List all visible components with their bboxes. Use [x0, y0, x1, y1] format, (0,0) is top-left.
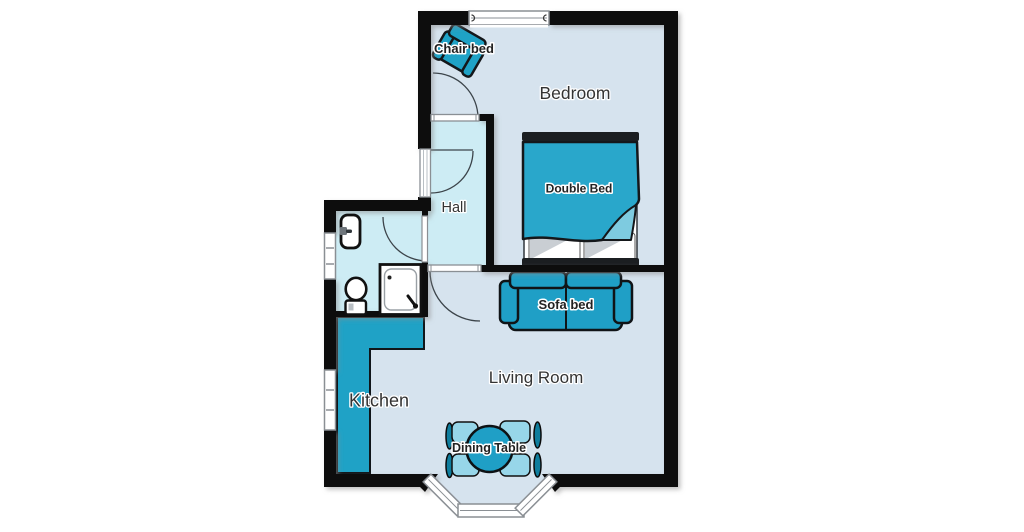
svg-text:Sofa bed: Sofa bed [539, 297, 594, 312]
svg-text:Dining Table: Dining Table [452, 441, 526, 455]
svg-text:Bedroom: Bedroom [539, 83, 610, 103]
svg-text:Double Bed: Double Bed [546, 182, 613, 196]
svg-text:Hall: Hall [442, 200, 467, 216]
svg-text:Kitchen: Kitchen [349, 391, 409, 411]
svg-text:Living Room: Living Room [489, 368, 584, 387]
svg-text:Chair bed: Chair bed [434, 41, 494, 56]
